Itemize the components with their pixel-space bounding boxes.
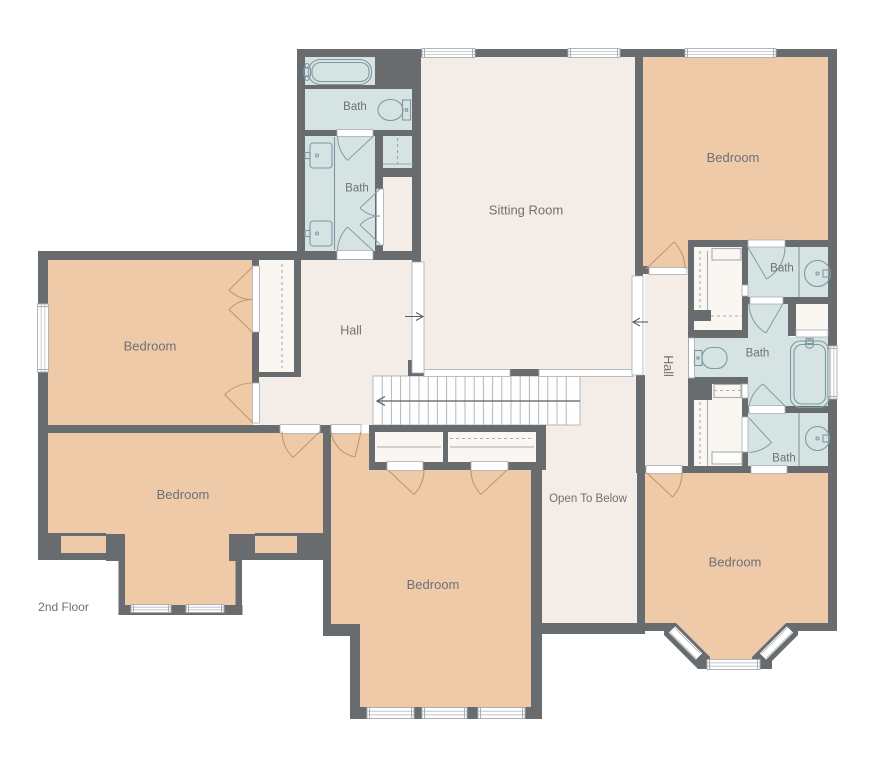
svg-text:Bedroom: Bedroom — [407, 577, 460, 592]
svg-text:Bath: Bath — [772, 453, 796, 465]
svg-text:Bedroom: Bedroom — [157, 487, 210, 502]
svg-text:Bath: Bath — [345, 183, 369, 195]
svg-text:Hall: Hall — [661, 355, 675, 377]
svg-text:2nd Floor: 2nd Floor — [38, 600, 89, 614]
svg-text:Bedroom: Bedroom — [124, 339, 177, 354]
svg-text:Bath: Bath — [746, 348, 770, 360]
svg-text:Hall: Hall — [340, 324, 362, 338]
svg-text:Bedroom: Bedroom — [709, 555, 762, 570]
svg-text:Bedroom: Bedroom — [707, 150, 760, 165]
svg-text:Bath: Bath — [343, 101, 367, 113]
svg-text:Bath: Bath — [770, 263, 794, 275]
svg-text:Sitting Room: Sitting Room — [489, 203, 563, 218]
svg-text:Open To Below: Open To Below — [549, 493, 627, 505]
